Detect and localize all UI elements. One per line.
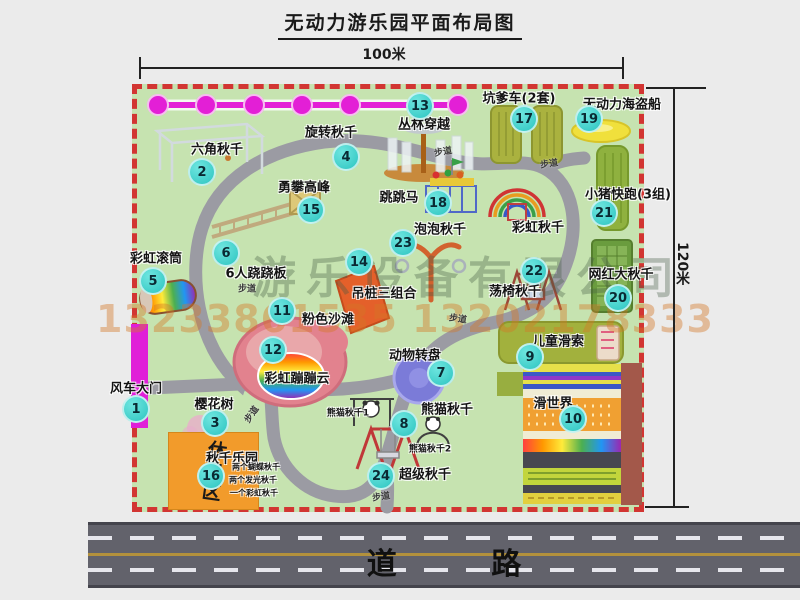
attraction-label-6: 6人跷跷板 bbox=[225, 263, 286, 282]
attraction-badge-13: 13 bbox=[406, 92, 434, 120]
attraction-label-2: 六角秋千 bbox=[191, 139, 243, 158]
attraction-badge-19: 19 bbox=[575, 105, 603, 133]
walkway-label-4: 步道 bbox=[241, 403, 262, 425]
attraction-label-5: 彩虹滚筒 bbox=[130, 248, 182, 267]
attraction-label-23: 泡泡秋千 bbox=[414, 219, 466, 238]
attraction-badge-15: 15 bbox=[297, 196, 325, 224]
page-title: 无动力游乐园平面布局图 bbox=[278, 8, 521, 40]
labels-layer: 风车大门1六角秋千2樱花树3旋转秋千4彩虹滚筒56人跷跷板6动物转盘7熊猫秋千8… bbox=[0, 0, 800, 600]
attraction-badge-5: 5 bbox=[139, 267, 167, 295]
dimension-tick-bottom bbox=[645, 506, 689, 508]
attraction-badge-12: 12 bbox=[259, 336, 287, 364]
attraction-badge-9: 9 bbox=[516, 343, 544, 371]
attraction-badge-2: 2 bbox=[188, 158, 216, 186]
attraction-label-17: 坑爹车(2套) bbox=[483, 88, 556, 107]
attraction-badge-14: 14 bbox=[345, 248, 373, 276]
attraction-badge-11: 11 bbox=[268, 297, 296, 325]
extra-label-3: 两个蝴蝶秋千 bbox=[232, 462, 280, 473]
attraction-badge-22: 22 bbox=[520, 257, 548, 285]
attraction-label-12: 彩虹蹦蹦云 bbox=[264, 368, 329, 387]
attraction-badge-18: 18 bbox=[424, 189, 452, 217]
walkway-label-5: 步道 bbox=[371, 488, 391, 503]
attraction-badge-8: 8 bbox=[390, 410, 418, 438]
attraction-badge-17: 17 bbox=[510, 105, 538, 133]
attraction-label-4: 旋转秋千 bbox=[305, 122, 357, 141]
attraction-label-24: 超级秋千 bbox=[399, 464, 451, 483]
walkway-label-1: 步道 bbox=[539, 155, 559, 170]
dimension-tick-right bbox=[622, 57, 624, 79]
attraction-label-8: 熊猫秋千 bbox=[421, 399, 473, 418]
extra-label-1: 熊猫秋千1 bbox=[327, 406, 369, 419]
extra-label-2: 熊猫秋千2 bbox=[409, 442, 451, 455]
attraction-badge-16: 16 bbox=[197, 462, 225, 490]
attraction-badge-1: 1 bbox=[122, 395, 150, 423]
dimension-tick-left bbox=[139, 57, 141, 79]
attraction-label-15: 勇攀高峰 bbox=[278, 177, 330, 196]
attraction-label-11: 粉色沙滩 bbox=[302, 309, 354, 328]
extra-label-4: 两个发光秋千 bbox=[229, 475, 277, 486]
road: 道 路 bbox=[88, 522, 800, 588]
attraction-badge-21: 21 bbox=[590, 199, 618, 227]
attraction-label-20: 网红大秋千 bbox=[588, 264, 653, 283]
attraction-badge-6: 6 bbox=[212, 239, 240, 267]
extra-label-5: 一个彩虹秋千 bbox=[230, 488, 278, 499]
attraction-label-18: 跳跳马 bbox=[379, 187, 418, 206]
attraction-badge-7: 7 bbox=[427, 359, 455, 387]
attraction-label-1: 风车大门 bbox=[110, 378, 162, 397]
dimension-line-horizontal bbox=[140, 67, 624, 69]
walkway-label-3: 步道 bbox=[448, 310, 468, 325]
attraction-badge-10: 10 bbox=[559, 405, 587, 433]
dimension-height-label: 120米 bbox=[672, 242, 692, 285]
attraction-badge-24: 24 bbox=[367, 462, 395, 490]
walkway-label-0: 步道 bbox=[433, 143, 453, 159]
attraction-badge-20: 20 bbox=[604, 284, 632, 312]
attraction-badge-4: 4 bbox=[332, 143, 360, 171]
attraction-badge-23: 23 bbox=[389, 229, 417, 257]
page-title-wrap: 无动力游乐园平面布局图 bbox=[0, 8, 800, 40]
dimension-line-vertical bbox=[673, 88, 675, 507]
dimension-width-label: 100米 bbox=[352, 44, 416, 64]
extra-label-0: 彩虹秋千 bbox=[512, 217, 564, 236]
attraction-badge-3: 3 bbox=[201, 409, 229, 437]
attraction-label-14: 吊桩三组合 bbox=[351, 283, 416, 302]
dimension-tick-top bbox=[646, 87, 706, 89]
road-label: 道 路 bbox=[88, 539, 800, 583]
walkway-label-2: 步道 bbox=[238, 282, 256, 295]
